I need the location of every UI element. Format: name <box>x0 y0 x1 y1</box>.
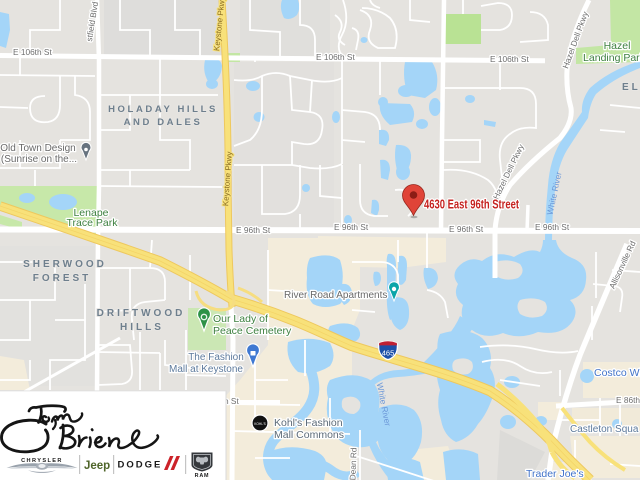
svg-text:E 96th St: E 96th St <box>236 225 271 235</box>
svg-text:RAM: RAM <box>195 473 210 479</box>
svg-text:Kohl's Fashion: Kohl's Fashion <box>274 417 343 429</box>
svg-text:AND DALES: AND DALES <box>124 117 203 128</box>
svg-text:Castleton Squa: Castleton Squa <box>570 424 639 435</box>
svg-text:Peace Cemetery: Peace Cemetery <box>213 325 292 337</box>
svg-text:Jeep: Jeep <box>84 460 110 472</box>
svg-text:HILLS: HILLS <box>120 322 164 333</box>
svg-text:SHERWOOD: SHERWOOD <box>23 259 107 270</box>
svg-text:DODGE: DODGE <box>118 460 163 471</box>
svg-text:The Fashion: The Fashion <box>188 352 244 363</box>
svg-text:Trader Joe's: Trader Joe's <box>526 468 584 480</box>
svg-text:E 96th St: E 96th St <box>535 222 570 232</box>
svg-text:HOLADAY HILLS: HOLADAY HILLS <box>108 104 218 115</box>
svg-text:EL: EL <box>622 82 640 93</box>
svg-text:Our Lady of: Our Lady of <box>213 313 268 325</box>
svg-text:River Road Apartments: River Road Apartments <box>284 290 387 301</box>
svg-text:DRIFTWOOD: DRIFTWOOD <box>97 308 186 319</box>
svg-text:Hazel: Hazel <box>604 40 631 52</box>
svg-text:Old Town Design: Old Town Design <box>0 143 75 154</box>
svg-text:E 106th St: E 106th St <box>490 54 529 64</box>
svg-text:Mall at Keystone: Mall at Keystone <box>169 364 243 375</box>
svg-text:E 96th St: E 96th St <box>334 222 369 232</box>
svg-text:FOREST: FOREST <box>33 273 92 284</box>
svg-text:4630 East 96th Street: 4630 East 96th Street <box>424 198 520 212</box>
svg-text:E 96th St: E 96th St <box>449 224 484 234</box>
svg-text:Landing Park: Landing Park <box>583 52 640 64</box>
svg-text:Mall Commons: Mall Commons <box>274 429 344 441</box>
svg-text:KOHL'S: KOHL'S <box>254 422 265 426</box>
svg-text:Costco Wh: Costco Wh <box>594 367 640 379</box>
svg-text:E 106th St: E 106th St <box>13 47 52 57</box>
svg-text:465: 465 <box>382 349 395 358</box>
svg-text:Dean Rd: Dean Rd <box>347 447 358 480</box>
svg-text:(Sunrise on the...: (Sunrise on the... <box>1 154 77 165</box>
svg-text:E 106th St: E 106th St <box>316 52 355 62</box>
svg-text:Trace Park: Trace Park <box>67 217 119 229</box>
svg-text:E 86th: E 86th <box>616 395 640 405</box>
